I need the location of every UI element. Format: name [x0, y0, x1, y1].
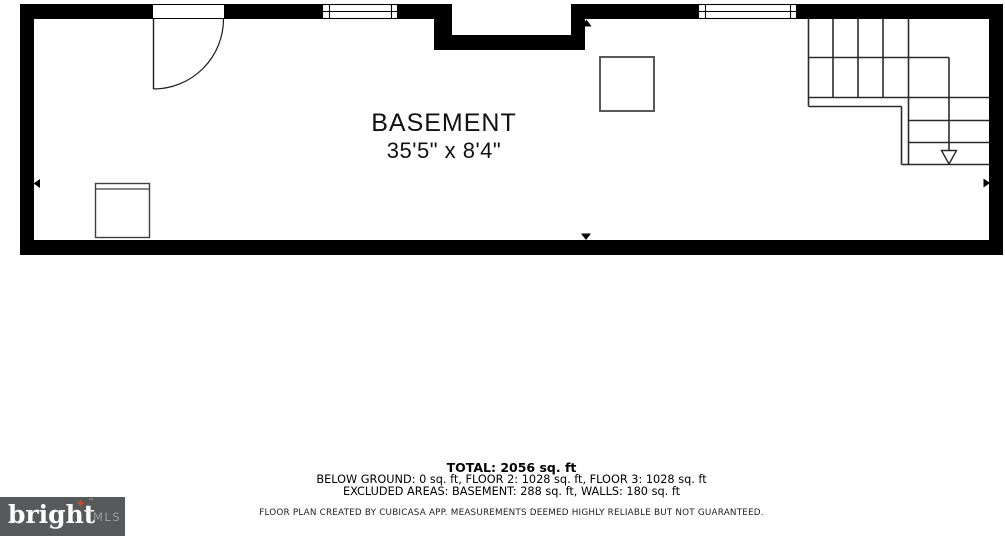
wall-top-2	[225, 4, 322, 19]
wall-right	[989, 4, 1003, 255]
door	[153, 5, 225, 90]
room-name-label: BASEMENT	[319, 109, 569, 138]
floor-plan-page: BASEMENT 35'5" x 8'4" TOTAL: 2056 sq. ft…	[0, 0, 1005, 536]
area-summary: TOTAL: 2056 sq. ft BELOW GROUND: 0 sq. f…	[18, 461, 1005, 499]
fixture-square-top	[600, 57, 654, 111]
window-left	[323, 5, 398, 19]
arrow-head-down-icon	[942, 151, 957, 165]
room-dimensions-label: 35'5" x 8'4"	[319, 138, 569, 164]
window-right	[699, 5, 797, 19]
fixture-outline	[96, 184, 150, 238]
fixture-outline	[600, 57, 654, 111]
excluded-area-line: EXCLUDED AREAS: BASEMENT: 288 sq. ft, WA…	[18, 486, 1005, 498]
fixture-square-bottom	[96, 184, 150, 238]
wall-recess-bottom	[434, 35, 585, 50]
wall-bottom	[20, 240, 1003, 255]
wall-recess-right	[571, 4, 585, 50]
door-opening	[153, 5, 225, 19]
logo-star-icon: ✦	[75, 498, 86, 511]
wall-top-5	[797, 4, 989, 19]
bright-mls-logo: bright ✦ ™ MLS	[0, 497, 125, 536]
logo-suffix-text: MLS	[93, 510, 121, 524]
marker-left-icon	[34, 179, 41, 188]
wall-left	[20, 4, 34, 255]
staircase	[809, 19, 990, 165]
disclaimer-text: FLOOR PLAN CREATED BY CUBICASA APP. MEAS…	[18, 508, 1005, 518]
trademark-symbol: ™	[88, 498, 94, 505]
door-swing-arc	[154, 19, 224, 89]
stair-direction-arrow	[942, 58, 957, 165]
wall-top-4	[571, 4, 698, 19]
wall-top-1	[20, 4, 152, 19]
marker-bottom-icon	[581, 234, 591, 241]
